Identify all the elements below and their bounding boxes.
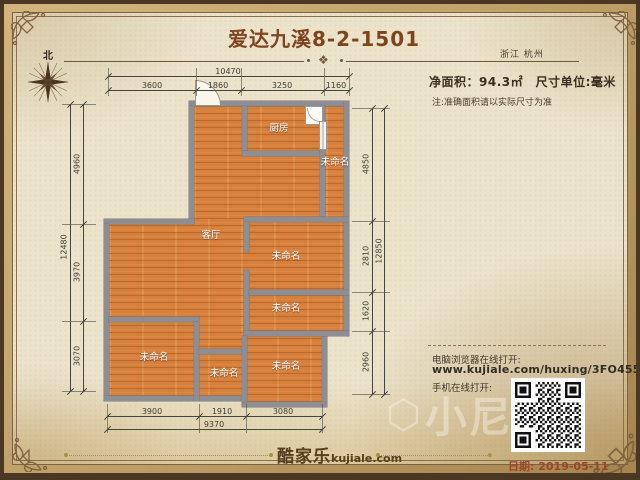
- floor-plan-sheet: ⬡ 小尼 爱达九溪8-2-1501 浙江 杭州 ❖ 净面积：94.3㎡ 尺寸单位…: [0, 0, 640, 480]
- wall: [242, 336, 247, 402]
- room-label-unnamed: 未命名: [272, 358, 301, 372]
- wall: [194, 322, 199, 401]
- dim-label: 1160: [326, 81, 346, 90]
- dim-label: 3600: [142, 81, 162, 90]
- dotted-rule: [66, 455, 272, 456]
- divider-dot: [340, 59, 343, 62]
- room-label-unnamed: 未命名: [272, 248, 301, 262]
- dim-line-top-total: [108, 76, 349, 77]
- divider-ornament-icon: ❖: [318, 54, 329, 66]
- net-area-label: 净面积：94.3㎡ 尺寸单位:毫米: [429, 73, 616, 90]
- dim-label: 3070: [73, 346, 82, 366]
- divider-line: [64, 61, 304, 62]
- dim-label: 1910: [212, 407, 232, 416]
- dim-label: 2960: [362, 352, 371, 372]
- room-label-unnamed: 未命名: [272, 300, 301, 314]
- floor-area: [109, 322, 244, 396]
- dim-label: 3250: [272, 81, 292, 90]
- dim-label: 2810: [362, 246, 371, 266]
- page-title: 爱达九溪8-2-1501: [228, 23, 420, 52]
- wall: [242, 106, 247, 156]
- area-note: 注:准确面积请以实际尺寸为准: [432, 95, 552, 108]
- room-label-unnamed: 未命名: [321, 154, 350, 168]
- dim-line-left-segments: [83, 104, 84, 391]
- room-label-kitchen: 厨房: [269, 120, 288, 134]
- dim-label: 1620: [362, 301, 371, 321]
- wall: [244, 217, 349, 222]
- date-label: 日期: 2019-05-11: [508, 458, 609, 474]
- dashed-divider: [428, 345, 606, 346]
- wall: [242, 151, 325, 156]
- dim-line-right-segments: [372, 108, 373, 394]
- wall: [244, 222, 249, 252]
- wall: [109, 317, 199, 322]
- dim-label: 4850: [362, 154, 371, 174]
- room-label-living: 客厅: [201, 227, 220, 241]
- wall: [249, 290, 349, 295]
- wall: [244, 270, 249, 334]
- wall: [104, 396, 247, 401]
- floor-area: [109, 219, 344, 331]
- mobile-open-label: 手机在线打开:: [432, 380, 492, 394]
- dim-label: 12480: [60, 234, 69, 259]
- region-label: 浙江 杭州: [500, 47, 544, 60]
- room-label-unnamed: 未命名: [210, 365, 239, 379]
- wall: [244, 331, 349, 336]
- share-url-text: www.kujiale.com/huxing/3FO455TI3KE0: [432, 363, 640, 376]
- dim-label: 4960: [73, 154, 82, 174]
- wall: [199, 349, 244, 354]
- divider-dot: [307, 59, 310, 62]
- qr-code: [511, 378, 585, 452]
- dim-line-right-total: [384, 108, 385, 394]
- dim-label: 3900: [142, 407, 162, 416]
- wall: [322, 336, 327, 407]
- dim-label: 3970: [73, 262, 82, 282]
- dim-label: 12850: [375, 238, 384, 263]
- wall: [189, 106, 194, 224]
- window-icon: [319, 121, 327, 150]
- dim-label: 1860: [208, 81, 228, 90]
- dim-label: 10470: [215, 67, 240, 76]
- dim-line-left-total: [70, 104, 71, 391]
- room-label-unnamed: 未命名: [140, 349, 169, 363]
- dim-label: 3080: [273, 407, 293, 416]
- divider-line: [346, 61, 579, 62]
- dim-line-bottom-total: [107, 429, 322, 430]
- hexagon-logo-icon: ⬡: [386, 395, 421, 435]
- dim-line-bottom-segments: [107, 416, 322, 417]
- brand-site: kujiale.com: [331, 452, 402, 465]
- compass-rose-icon: [26, 60, 70, 104]
- dim-line-top-segments: [108, 90, 349, 91]
- wall: [104, 224, 109, 401]
- wall: [104, 219, 194, 224]
- dim-label: 9370: [204, 420, 224, 429]
- brand-name-cn: 酷家乐: [277, 447, 331, 467]
- dotted-rule: [378, 455, 490, 456]
